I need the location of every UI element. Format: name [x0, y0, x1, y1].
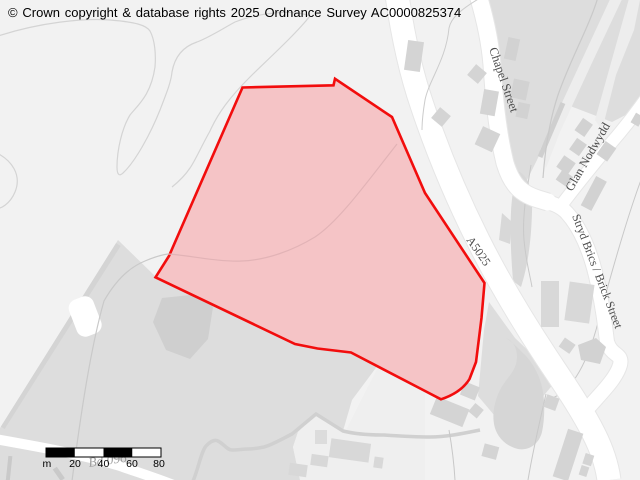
svg-text:© Crown copyright & database r: © Crown copyright & database rights 2025… — [8, 5, 461, 20]
svg-text:m: m — [43, 458, 52, 470]
svg-text:40: 40 — [98, 458, 110, 470]
svg-text:80: 80 — [153, 458, 165, 470]
svg-text:60: 60 — [126, 458, 138, 470]
svg-text:20: 20 — [69, 458, 81, 470]
